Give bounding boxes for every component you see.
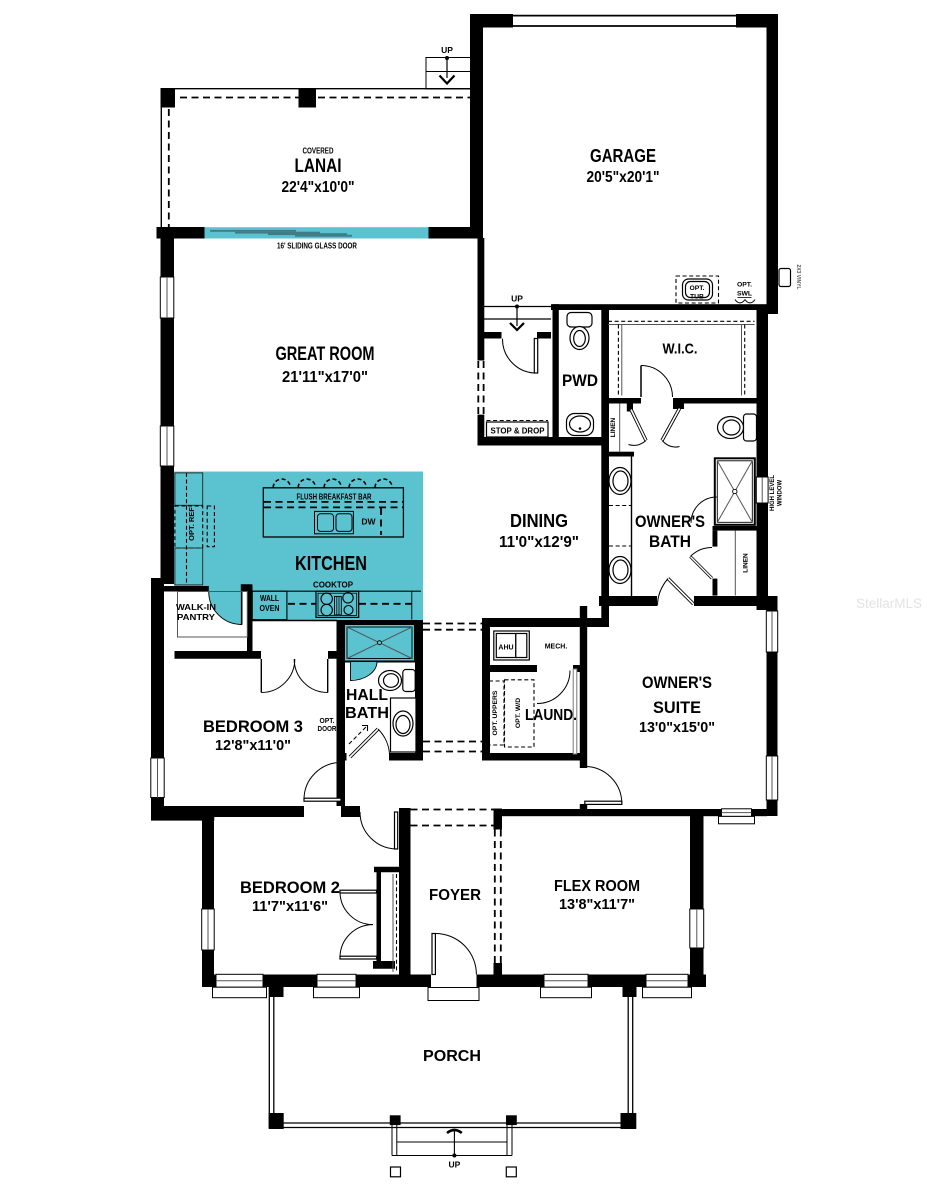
svg-text:WALK-IN: WALK-IN	[176, 602, 216, 612]
svg-text:UP: UP	[441, 45, 453, 55]
svg-text:13'8"x11'7": 13'8"x11'7"	[559, 897, 635, 913]
svg-text:MECH.: MECH.	[545, 644, 568, 651]
svg-text:22'4"x10'0": 22'4"x10'0"	[282, 179, 355, 196]
svg-text:UP: UP	[448, 1160, 460, 1170]
svg-text:OPT. REF: OPT. REF	[187, 507, 196, 541]
svg-text:FLUSH BREAKFAST BAR: FLUSH BREAKFAST BAR	[297, 492, 372, 502]
svg-text:LINEN: LINEN	[743, 553, 750, 573]
svg-text:11'7"x11'6": 11'7"x11'6"	[252, 899, 328, 915]
svg-text:PORCH: PORCH	[423, 1048, 481, 1065]
svg-text:DINING: DINING	[510, 510, 568, 531]
svg-text:WALL: WALL	[260, 594, 279, 603]
svg-text:BATH: BATH	[649, 533, 691, 551]
svg-text:HALL: HALL	[346, 687, 388, 704]
svg-text:FOYER: FOYER	[429, 887, 481, 904]
svg-text:STOP & DROP: STOP & DROP	[491, 426, 545, 436]
svg-text:BEDROOM 3: BEDROOM 3	[203, 717, 303, 736]
svg-text:BEDROOM 2: BEDROOM 2	[240, 878, 340, 897]
svg-text:COOKTOP: COOKTOP	[313, 581, 354, 590]
svg-text:LANAI: LANAI	[295, 156, 342, 177]
svg-text:HIGH LEVEL: HIGH LEVEL	[770, 475, 776, 511]
svg-text:11'0"x12'9": 11'0"x12'9"	[499, 534, 579, 551]
svg-text:OPT. UPPERS: OPT. UPPERS	[492, 690, 499, 735]
svg-text:OPT.: OPT.	[737, 282, 752, 289]
svg-text:OPT. W/D: OPT. W/D	[515, 698, 522, 728]
svg-text:OWNER'S: OWNER'S	[642, 674, 712, 692]
svg-text:OWNER'S: OWNER'S	[635, 513, 705, 531]
svg-text:KITCHEN: KITCHEN	[295, 553, 367, 575]
svg-text:20'5"x20'1": 20'5"x20'1"	[587, 169, 660, 186]
svg-text:13'0"x15'0": 13'0"x15'0"	[639, 720, 715, 736]
svg-text:LAUND.: LAUND.	[525, 707, 577, 724]
svg-text:DOOR: DOOR	[318, 726, 337, 733]
svg-text:16' SLIDING GLASS DOOR: 16' SLIDING GLASS DOOR	[277, 241, 357, 251]
svg-text:2X3 VINYL: 2X3 VINYL	[795, 264, 801, 289]
svg-text:AHU: AHU	[498, 645, 513, 652]
svg-text:BATH: BATH	[345, 705, 389, 722]
svg-text:FLEX ROOM: FLEX ROOM	[554, 878, 640, 895]
svg-text:StellarMLS: StellarMLS	[856, 596, 922, 611]
svg-text:TUB: TUB	[690, 294, 704, 301]
svg-text:SUITE: SUITE	[653, 699, 701, 717]
svg-text:OPT.: OPT.	[689, 285, 704, 292]
svg-text:SWL: SWL	[737, 291, 752, 298]
svg-text:GARAGE: GARAGE	[590, 145, 656, 166]
svg-text:GREAT ROOM: GREAT ROOM	[276, 343, 375, 365]
svg-text:COVERED: COVERED	[303, 147, 334, 156]
svg-text:PWD: PWD	[562, 371, 598, 390]
svg-text:21'11"x17'0": 21'11"x17'0"	[282, 369, 368, 386]
svg-text:LINEN: LINEN	[610, 417, 617, 437]
svg-text:UP: UP	[511, 294, 523, 304]
svg-text:OVEN: OVEN	[260, 604, 280, 613]
svg-text:OPT.: OPT.	[320, 718, 335, 725]
svg-text:DW: DW	[361, 517, 376, 527]
svg-text:12'8"x11'0": 12'8"x11'0"	[215, 738, 291, 754]
svg-text:WINDOW: WINDOW	[778, 480, 784, 507]
svg-text:W.I.C.: W.I.C.	[663, 341, 698, 358]
svg-text:PANTRY: PANTRY	[177, 612, 215, 622]
